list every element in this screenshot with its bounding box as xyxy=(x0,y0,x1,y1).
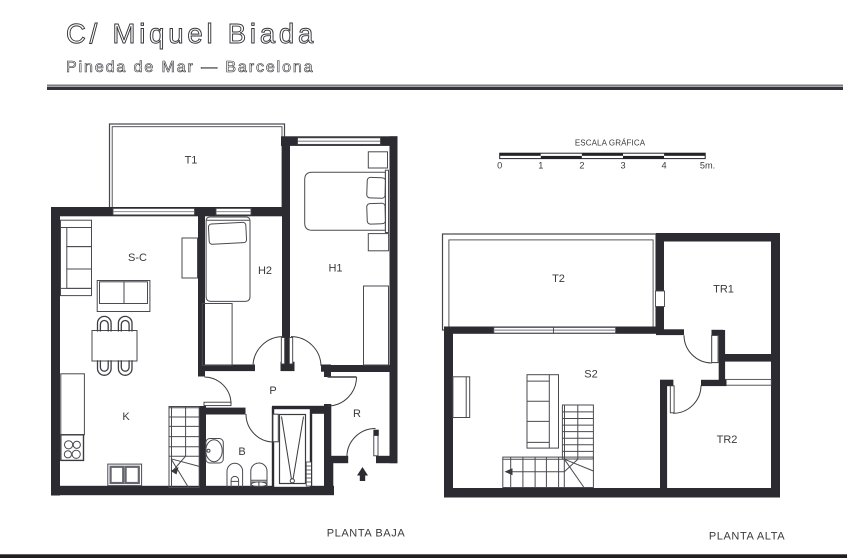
svg-text:TR2: TR2 xyxy=(717,434,738,446)
svg-text:B: B xyxy=(238,446,245,458)
svg-text:T2: T2 xyxy=(552,273,565,285)
svg-text:P: P xyxy=(269,385,276,397)
svg-text:5m.: 5m. xyxy=(700,161,715,171)
svg-text:R: R xyxy=(353,408,361,420)
svg-text:1: 1 xyxy=(538,161,543,171)
svg-text:0: 0 xyxy=(497,161,502,171)
svg-text:2: 2 xyxy=(579,161,584,171)
svg-text:H1: H1 xyxy=(328,263,342,275)
svg-text:Pineda de Mar — Barcelona: Pineda de Mar — Barcelona xyxy=(66,59,315,76)
svg-text:T1: T1 xyxy=(185,155,198,167)
svg-text:K: K xyxy=(122,411,130,423)
svg-text:3: 3 xyxy=(620,161,625,171)
svg-text:ESCALA GRÁFICA: ESCALA GRÁFICA xyxy=(575,139,646,148)
svg-text:TR1: TR1 xyxy=(713,284,734,296)
svg-text:4: 4 xyxy=(662,161,667,171)
svg-text:S2: S2 xyxy=(584,369,597,381)
svg-text:PLANTA ALTA: PLANTA ALTA xyxy=(709,530,785,542)
svg-text:C/ Miquel Biada: C/ Miquel Biada xyxy=(66,18,317,49)
svg-text:PLANTA BAJA: PLANTA BAJA xyxy=(327,528,406,540)
svg-text:H2: H2 xyxy=(258,265,272,277)
svg-text:S-C: S-C xyxy=(128,252,147,264)
